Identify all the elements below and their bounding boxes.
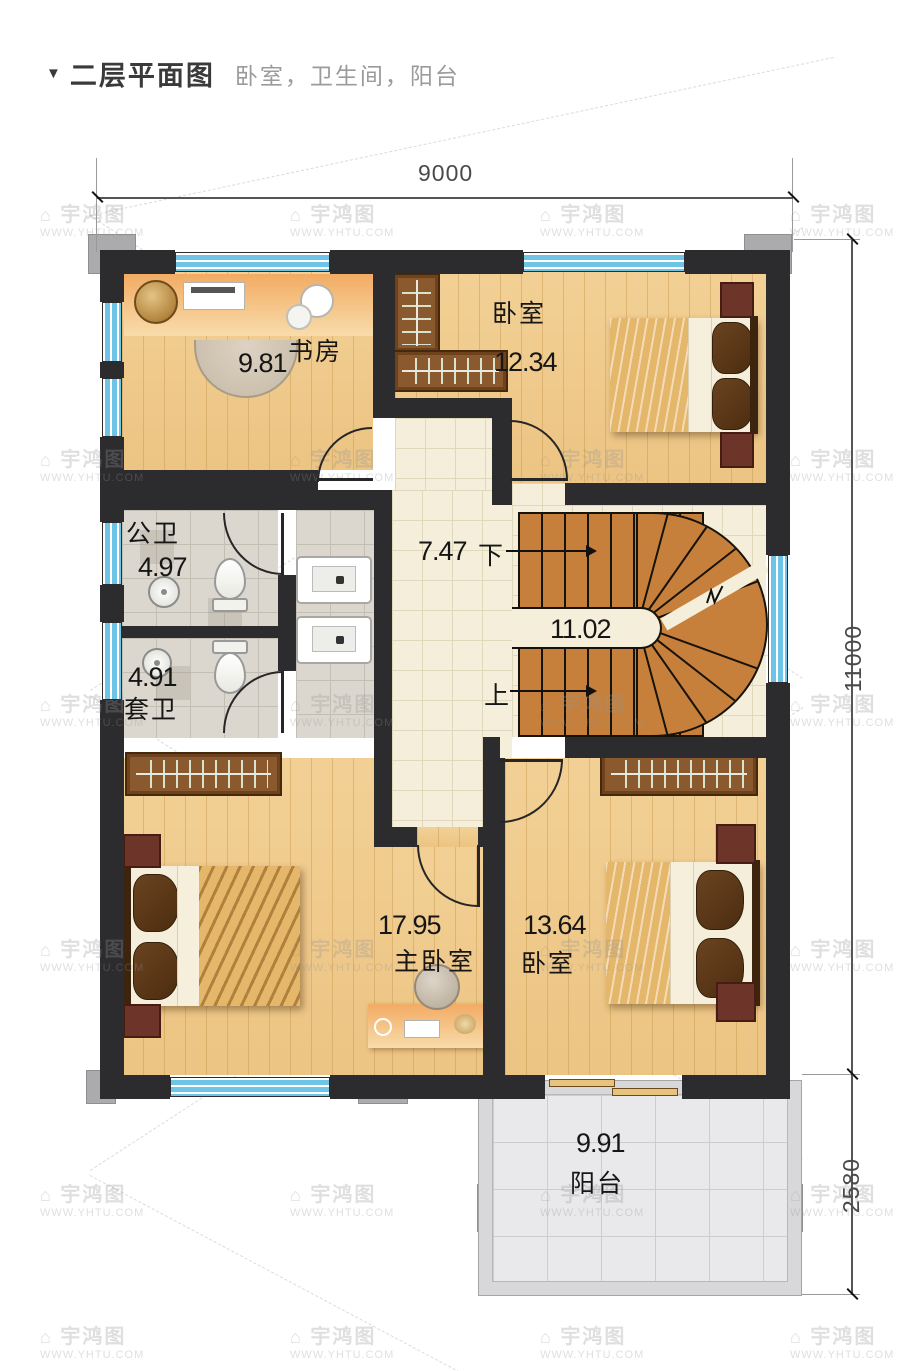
room-area-ensuite-bath: 4.91 bbox=[128, 662, 177, 693]
room-label-ensuite-bath: 套卫 bbox=[124, 690, 178, 726]
room-label-master: 主卧室 bbox=[394, 942, 475, 978]
wall bbox=[100, 362, 124, 378]
window bbox=[768, 555, 788, 683]
balcony-floor bbox=[492, 1094, 788, 1282]
area-hallway: 7.47 bbox=[418, 536, 467, 567]
window bbox=[102, 378, 122, 437]
dimension-label-right-lower: 2580 bbox=[838, 1158, 865, 1213]
watermark: ⌂ 宇鸿图WWW.YHTU.COM bbox=[40, 198, 144, 239]
nightstand bbox=[123, 1004, 161, 1038]
wall bbox=[100, 700, 124, 1099]
watermark: ⌂ 宇鸿图WWW.YHTU.COM bbox=[40, 1320, 144, 1361]
sink-icon bbox=[296, 556, 372, 604]
wardrobe bbox=[125, 752, 282, 796]
floor-plan-canvas: ▼ 二层平面图 卧室，卫生间，阳台 ⌂ 宇鸿图WWW.YHTU.COM⌂ 宇鸿图… bbox=[0, 0, 910, 1371]
watermark-logo-icon: ⌂ bbox=[40, 695, 53, 716]
watermark: ⌂ 宇鸿图WWW.YHTU.COM bbox=[40, 1178, 144, 1219]
wall bbox=[100, 250, 124, 302]
wall bbox=[373, 398, 512, 418]
watermark: ⌂ 宇鸿图WWW.YHTU.COM bbox=[790, 1320, 894, 1361]
wall bbox=[483, 737, 500, 758]
watermark: ⌂ 宇鸿图WWW.YHTU.COM bbox=[540, 198, 644, 239]
double-bed bbox=[125, 866, 300, 1006]
sink-icon bbox=[296, 616, 372, 664]
room-master-floor bbox=[417, 827, 478, 847]
watermark-logo-icon: ⌂ bbox=[790, 940, 803, 961]
watermark: ⌂ 宇鸿图WWW.YHTU.COM bbox=[290, 198, 394, 239]
wall bbox=[278, 575, 296, 671]
watermark-logo-icon: ⌂ bbox=[40, 205, 53, 226]
wall bbox=[565, 737, 790, 758]
hallway-floor bbox=[395, 418, 492, 490]
room-area-balcony: 9.91 bbox=[576, 1128, 625, 1159]
clock-icon bbox=[374, 1018, 392, 1036]
wall bbox=[100, 490, 392, 510]
wall bbox=[682, 1075, 790, 1099]
room-area-public-bath: 4.97 bbox=[138, 552, 187, 583]
watermark-logo-icon: ⌂ bbox=[540, 1327, 553, 1348]
wardrobe bbox=[393, 350, 508, 392]
window bbox=[102, 622, 122, 700]
toilet-icon bbox=[214, 558, 246, 600]
wall bbox=[373, 272, 395, 418]
sliding-door-panel bbox=[612, 1088, 678, 1096]
page-title: ▼ 二层平面图 卧室，卫生间，阳台 bbox=[46, 54, 460, 93]
watermark-logo-icon: ⌂ bbox=[790, 450, 803, 471]
window bbox=[102, 302, 122, 362]
stair-up-arrow bbox=[510, 690, 588, 692]
wall bbox=[122, 470, 318, 490]
room-label-public-bath: 公卫 bbox=[126, 514, 180, 550]
toilet-tank bbox=[212, 598, 248, 612]
window bbox=[523, 252, 685, 272]
nightstand bbox=[720, 282, 754, 318]
wall bbox=[122, 626, 278, 638]
window bbox=[170, 1077, 330, 1097]
double-bed bbox=[610, 318, 756, 432]
hallway-floor bbox=[512, 483, 565, 505]
watermark-logo-icon: ⌂ bbox=[40, 450, 53, 471]
stair-up-label: 上 bbox=[484, 676, 511, 712]
stair-down-arrowhead bbox=[586, 545, 597, 557]
extension-line bbox=[96, 158, 97, 252]
room-area-master: 17.95 bbox=[378, 910, 441, 941]
room-label-study: 书房 bbox=[288, 332, 342, 368]
room-label-balcony: 阳台 bbox=[570, 1164, 624, 1200]
monitor-icon bbox=[191, 287, 235, 293]
watermark-logo-icon: ⌂ bbox=[40, 1327, 53, 1348]
extension-line bbox=[792, 158, 793, 252]
watermark-logo-icon: ⌂ bbox=[290, 205, 303, 226]
room-area-bedroom-top: 12.34 bbox=[494, 347, 557, 378]
plan-title: 二层平面图 bbox=[70, 54, 215, 93]
wardrobe bbox=[600, 752, 758, 796]
room-area-bedroom-bottom: 13.64 bbox=[523, 910, 586, 941]
watermark-logo-icon: ⌂ bbox=[540, 205, 553, 226]
watermark-logo-icon: ⌂ bbox=[290, 1185, 303, 1206]
window bbox=[175, 252, 330, 272]
nightstand bbox=[123, 834, 161, 868]
watermark: ⌂ 宇鸿图WWW.YHTU.COM bbox=[790, 443, 894, 484]
wall bbox=[330, 1075, 545, 1099]
window bbox=[102, 522, 122, 585]
wall bbox=[330, 250, 523, 274]
watermark: ⌂ 宇鸿图WWW.YHTU.COM bbox=[540, 1320, 644, 1361]
area-stairs: 11.02 bbox=[550, 614, 611, 645]
watermark-logo-icon: ⌂ bbox=[40, 1185, 53, 1206]
watermark-logo-icon: ⌂ bbox=[40, 940, 53, 961]
triangle-marker-icon: ▼ bbox=[46, 65, 61, 82]
wall bbox=[492, 418, 512, 505]
wall bbox=[100, 585, 124, 622]
stair-down-label: 下 bbox=[478, 536, 505, 572]
nightstand bbox=[716, 982, 756, 1022]
nightstand bbox=[716, 824, 756, 864]
room-area-study: 9.81 bbox=[238, 348, 287, 379]
wall bbox=[766, 250, 790, 555]
dimension-label-right: 11000 bbox=[840, 625, 867, 692]
stair-down-arrow bbox=[506, 550, 588, 552]
wall bbox=[374, 827, 417, 847]
sliding-door-panel bbox=[549, 1079, 615, 1087]
watermark: ⌂ 宇鸿图WWW.YHTU.COM bbox=[790, 933, 894, 974]
dimension-line-top bbox=[97, 197, 793, 199]
watermark-logo-icon: ⌂ bbox=[790, 1327, 803, 1348]
plant-icon bbox=[134, 280, 178, 324]
dimension-label-top: 9000 bbox=[418, 160, 473, 187]
watermark: ⌂ 宇鸿图WWW.YHTU.COM bbox=[790, 688, 894, 729]
laptop-icon bbox=[404, 1020, 440, 1038]
watermark: ⌂ 宇鸿图WWW.YHTU.COM bbox=[290, 1178, 394, 1219]
wardrobe bbox=[393, 273, 440, 353]
wall bbox=[565, 483, 766, 505]
plan-subtitle: 卧室，卫生间，阳台 bbox=[235, 57, 460, 91]
watermark: ⌂ 宇鸿图WWW.YHTU.COM bbox=[290, 1320, 394, 1361]
chair-icon bbox=[286, 304, 312, 330]
nightstand bbox=[720, 432, 754, 468]
wall bbox=[374, 490, 392, 838]
watermark: ⌂ 宇鸿图WWW.YHTU.COM bbox=[790, 198, 894, 239]
room-label-bedroom-bottom: 卧室 bbox=[521, 944, 575, 980]
wall bbox=[100, 1075, 170, 1099]
decor-icon bbox=[454, 1014, 476, 1034]
stair-up-arrowhead bbox=[586, 685, 597, 697]
watermark-logo-icon: ⌂ bbox=[290, 1327, 303, 1348]
room-label-bedroom-top: 卧室 bbox=[492, 294, 546, 330]
